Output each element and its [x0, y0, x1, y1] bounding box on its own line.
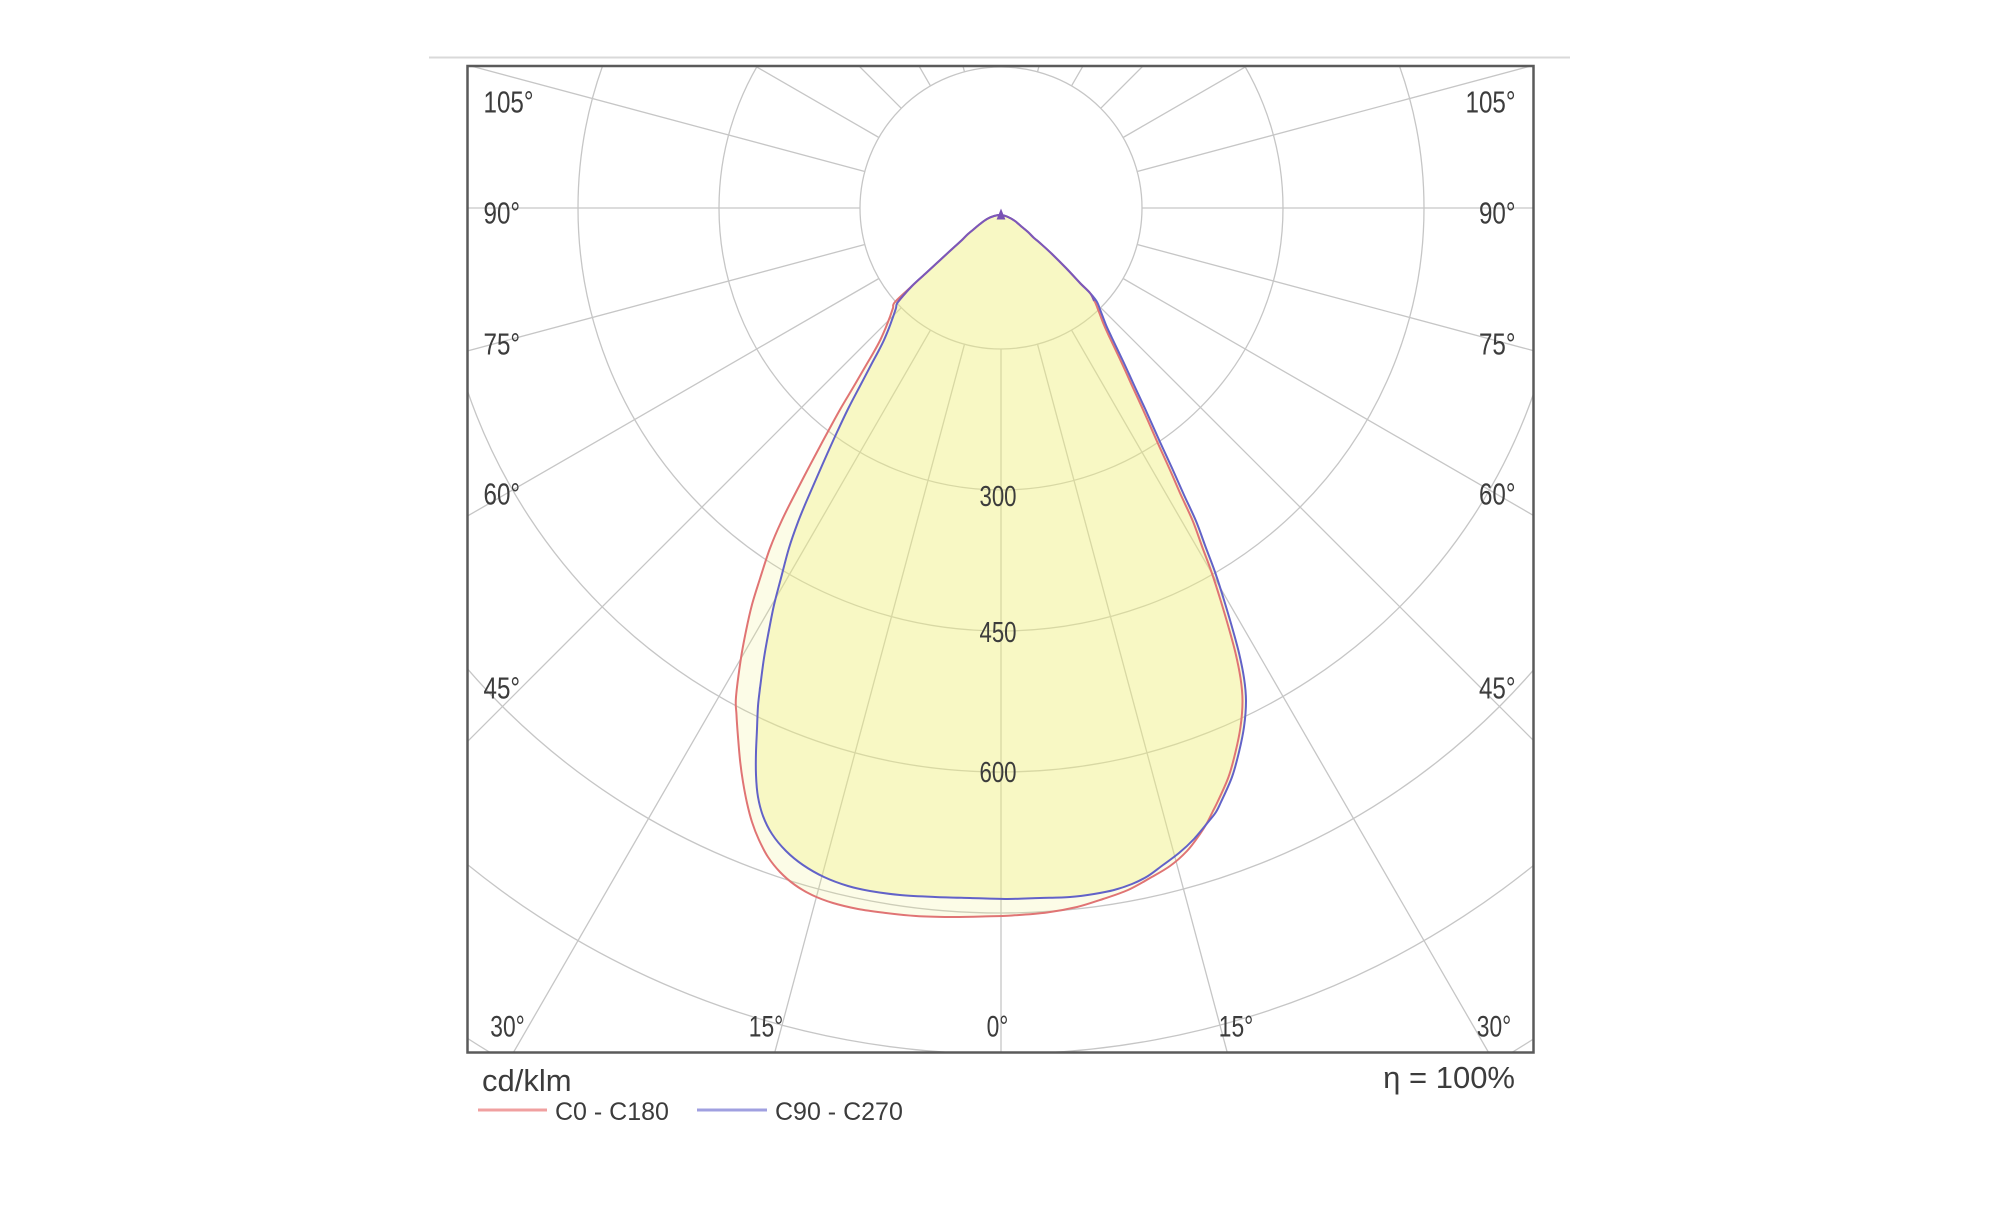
svg-text:cd/klm: cd/klm: [482, 1063, 572, 1098]
svg-text:105°: 105°: [1466, 85, 1516, 120]
svg-text:90°: 90°: [1479, 196, 1516, 231]
svg-text:60°: 60°: [484, 477, 521, 512]
svg-text:45°: 45°: [1479, 671, 1516, 706]
svg-text:450: 450: [979, 617, 1016, 648]
svg-text:30°: 30°: [490, 1009, 524, 1043]
svg-text:η = 100%: η = 100%: [1383, 1060, 1515, 1095]
svg-text:C90 - C270: C90 - C270: [775, 1098, 903, 1126]
svg-text:30°: 30°: [1477, 1009, 1511, 1043]
svg-text:90°: 90°: [484, 196, 521, 231]
svg-text:600: 600: [979, 757, 1016, 788]
svg-text:45°: 45°: [484, 671, 521, 706]
svg-text:15°: 15°: [749, 1009, 783, 1043]
svg-text:75°: 75°: [484, 327, 521, 362]
svg-text:75°: 75°: [1479, 327, 1516, 362]
svg-text:105°: 105°: [484, 85, 534, 120]
svg-text:C0 - C180: C0 - C180: [555, 1098, 669, 1126]
svg-text:60°: 60°: [1479, 477, 1516, 512]
svg-text:0°: 0°: [987, 1009, 1009, 1043]
svg-text:15°: 15°: [1219, 1009, 1253, 1043]
svg-text:300: 300: [979, 481, 1016, 512]
